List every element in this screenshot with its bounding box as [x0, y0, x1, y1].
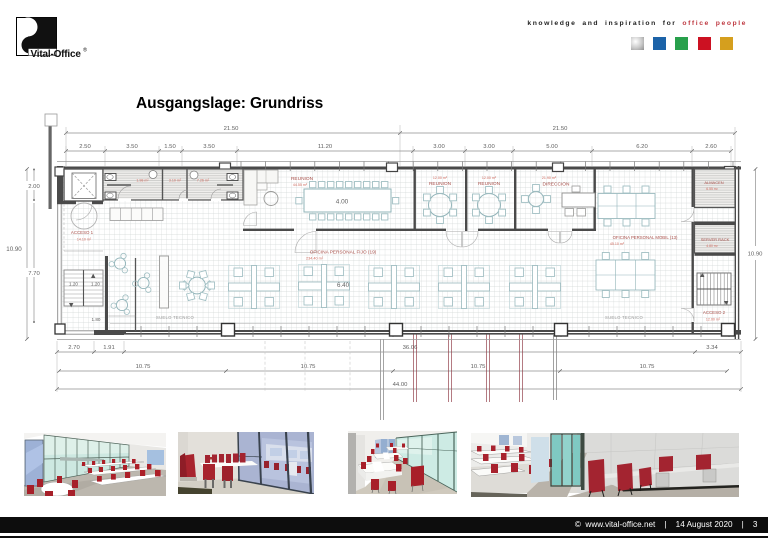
svg-text:1.98 m²: 1.98 m² — [136, 179, 149, 183]
svg-text:45.10 m²: 45.10 m² — [610, 242, 625, 246]
svg-text:6.20: 6.20 — [636, 144, 648, 150]
svg-text:SUELO TECNICO: SUELO TECNICO — [605, 315, 643, 320]
svg-text:3.50: 3.50 — [126, 144, 138, 150]
svg-text:14.10 m²: 14.10 m² — [77, 238, 92, 242]
svg-text:1.20: 1.20 — [91, 282, 100, 287]
svg-text:7.26 m²: 7.26 m² — [197, 179, 210, 183]
svg-text:3.34: 3.34 — [706, 345, 718, 351]
svg-text:234.40 m²: 234.40 m² — [306, 257, 324, 261]
svg-text:6.55 m²: 6.55 m² — [706, 187, 718, 191]
svg-text:ACCESO 1: ACCESO 1 — [71, 230, 94, 235]
svg-text:12.00 m²: 12.00 m² — [706, 318, 721, 322]
svg-text:12.00 m²: 12.00 m² — [433, 176, 448, 180]
svg-text:44.00: 44.00 — [393, 382, 408, 388]
svg-text:10.75: 10.75 — [136, 364, 151, 370]
svg-text:3.00: 3.00 — [433, 144, 445, 150]
svg-text:10.75: 10.75 — [640, 364, 655, 370]
svg-text:10.75: 10.75 — [301, 364, 316, 370]
svg-text:21.90 m²: 21.90 m² — [542, 176, 557, 180]
svg-text:1.80: 1.80 — [92, 317, 101, 322]
svg-text:ACCESO 2: ACCESO 2 — [703, 310, 726, 315]
svg-text:DIRECCION: DIRECCION — [543, 182, 570, 188]
svg-text:1.91: 1.91 — [103, 345, 114, 351]
svg-text:ALMACEN: ALMACEN — [704, 180, 723, 185]
svg-text:SUELO TECNICO: SUELO TECNICO — [156, 315, 194, 320]
svg-text:6.40: 6.40 — [337, 282, 350, 289]
svg-text:36.06: 36.06 — [403, 345, 418, 351]
svg-text:10.90: 10.90 — [748, 252, 763, 258]
svg-text:2.50: 2.50 — [79, 144, 91, 150]
svg-text:12.00 m²: 12.00 m² — [482, 176, 497, 180]
svg-text:5.00: 5.00 — [546, 144, 558, 150]
svg-text:1.20: 1.20 — [69, 282, 78, 287]
svg-text:2.00: 2.00 — [28, 184, 40, 190]
svg-text:4.80 m²: 4.80 m² — [706, 244, 718, 248]
svg-text:7.70: 7.70 — [28, 271, 40, 277]
svg-text:21.50: 21.50 — [224, 126, 239, 132]
svg-text:OFICINA PERSONAL MOBIL (13): OFICINA PERSONAL MOBIL (13) — [613, 235, 678, 240]
svg-text:10.75: 10.75 — [471, 364, 486, 370]
svg-text:2.60: 2.60 — [705, 144, 717, 150]
svg-text:4.00: 4.00 — [336, 199, 349, 206]
svg-text:3.10 m²: 3.10 m² — [169, 179, 182, 183]
svg-text:11.20: 11.20 — [318, 144, 333, 150]
svg-text:44.55 m²: 44.55 m² — [293, 183, 308, 187]
svg-text:10.90: 10.90 — [6, 246, 22, 253]
svg-text:OFICINA PERSONAL FIJO (19): OFICINA PERSONAL FIJO (19) — [310, 250, 377, 255]
svg-text:1.50: 1.50 — [164, 144, 176, 150]
svg-text:2.70: 2.70 — [68, 345, 80, 351]
svg-text:SERVER RACK: SERVER RACK — [701, 237, 730, 242]
svg-text:3.50: 3.50 — [203, 144, 215, 150]
svg-text:21.50: 21.50 — [553, 126, 568, 132]
svg-text:3.00: 3.00 — [483, 144, 495, 150]
